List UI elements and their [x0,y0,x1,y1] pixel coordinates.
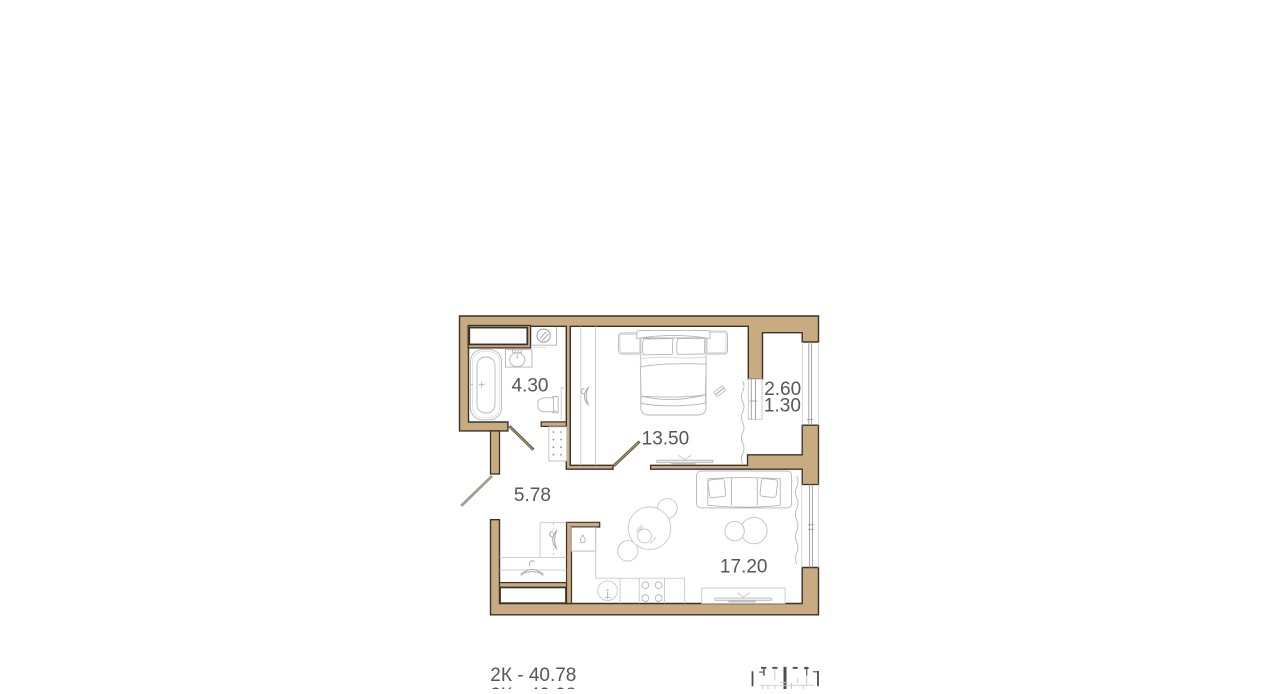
svg-text:2К - 40.98: 2К - 40.98 [490,685,576,689]
svg-text:1.30: 1.30 [764,396,801,417]
svg-text:13.50: 13.50 [642,429,690,450]
svg-text:17.20: 17.20 [720,557,768,578]
svg-text:5.78: 5.78 [514,485,551,506]
svg-text:4.30: 4.30 [512,376,549,397]
svg-text:2К - 40.78: 2К - 40.78 [490,665,576,686]
